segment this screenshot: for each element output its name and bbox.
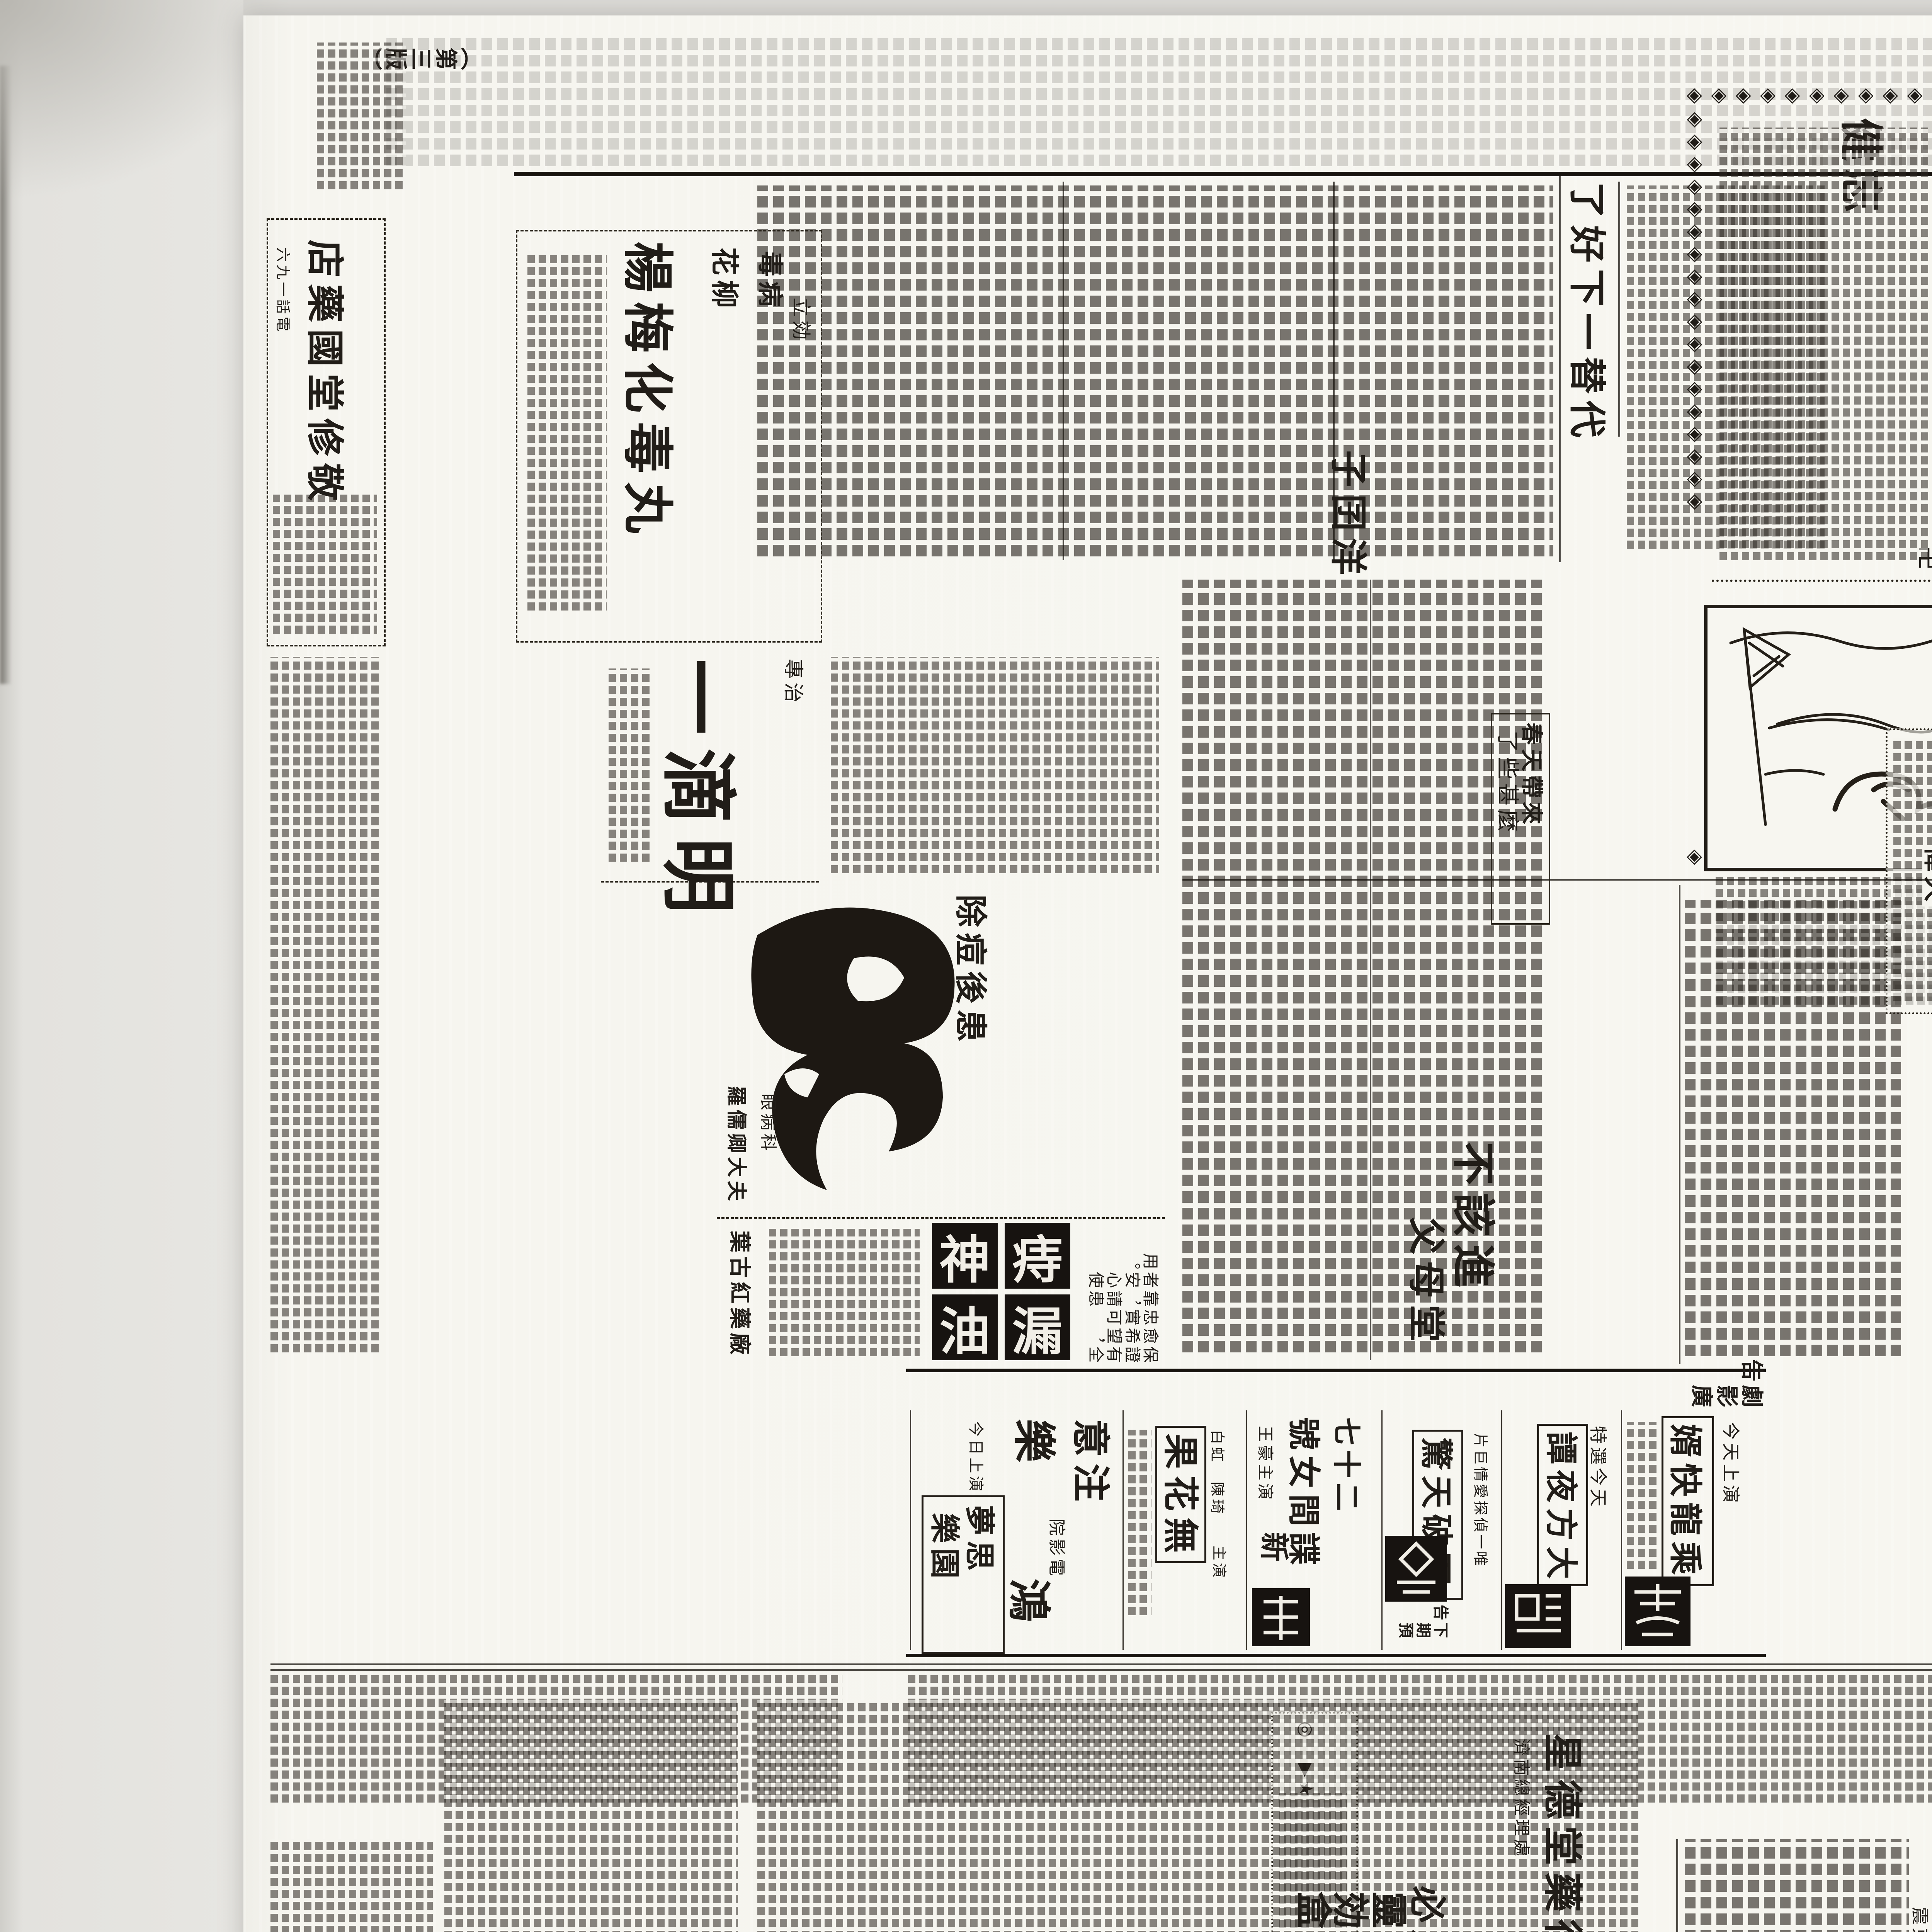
headline-daitihaole: 了好下一替代 bbox=[1568, 182, 1605, 444]
pharmacy-microtext bbox=[273, 495, 377, 634]
yidiming-title: 一滴明 bbox=[659, 659, 735, 927]
page-divider-rule bbox=[270, 1669, 1932, 1671]
zhilou-microtext bbox=[769, 1229, 920, 1356]
venue-char-hong: 鴻 bbox=[1007, 1578, 1050, 1629]
cinema-microtext bbox=[1627, 1422, 1658, 1569]
venue-label: 院影電 bbox=[1048, 1519, 1065, 1579]
dotted-divider bbox=[1712, 580, 1932, 582]
cinema-logo bbox=[1505, 1584, 1571, 1648]
film-title-right: 夢思 bbox=[964, 1505, 994, 1576]
zhilou-char-you: 油 bbox=[932, 1294, 998, 1360]
article-microtext bbox=[1685, 1839, 1909, 1932]
film-title: 婿快龍乘 bbox=[1668, 1424, 1702, 1581]
column-rule bbox=[1063, 182, 1064, 560]
pill-col4: 盒一 bbox=[1294, 1891, 1332, 1932]
cinema-microtext bbox=[1128, 1430, 1151, 1615]
headline-rule bbox=[1618, 182, 1620, 437]
cinema-logo bbox=[1625, 1577, 1690, 1646]
zhilou-copy: 保證有全愈希望，忠實可靠，請患者安心使用。 bbox=[1082, 1223, 1159, 1362]
article-microtext bbox=[444, 1700, 738, 1932]
diamond-chain-top: ◈◈◈◈◈◈◈◈◈◈◈◈ bbox=[1687, 83, 1932, 106]
newspaper-scan: { "masthead": { "title_display": "報日民平",… bbox=[0, 0, 1932, 1932]
small-ads-microtext bbox=[317, 43, 406, 189]
kicker-spring-right: 春天帶來 bbox=[1520, 723, 1543, 828]
film-title-left: 樂園 bbox=[929, 1513, 959, 1584]
store-note: 濟南總經理處 bbox=[1513, 1739, 1530, 1859]
cinema-section-label: 劇影廣告 bbox=[1673, 1375, 1764, 1406]
yangmei-title: 楊梅化毒丸 bbox=[621, 241, 672, 543]
diamond-chain-left: ◈◈◈◈◈◈◈◈◈◈◈◈◈◈◈◈◈◈ bbox=[1685, 112, 1706, 517]
page-divider-rule bbox=[270, 1663, 1932, 1665]
cinema-logo bbox=[1252, 1588, 1310, 1646]
zhilou-maker: 葉古紅藥廠 bbox=[728, 1231, 750, 1358]
headline-bugaijin: 不該進 bbox=[1451, 1142, 1494, 1295]
row-rule bbox=[1182, 879, 1932, 881]
doctor-name: 羅儒卿大夫 bbox=[726, 1086, 746, 1204]
cinema-note: 今日上演 bbox=[968, 1421, 983, 1494]
film-kicker: 唯一偵探愛情巨片 bbox=[1464, 1426, 1488, 1565]
yangmei-tag-huagill: 花柳 bbox=[710, 247, 738, 313]
article-microtext bbox=[1685, 900, 1901, 1356]
zhilou-char-zhi: 痔 bbox=[1005, 1223, 1070, 1289]
store-name: 星德堂藥行 bbox=[1542, 1733, 1581, 1932]
doctor-caption: 除痘後患 bbox=[954, 895, 986, 1048]
story-fragment: 偉大 bbox=[1922, 846, 1932, 906]
film-title: 譚夜方大 bbox=[1544, 1432, 1577, 1585]
film-title-part2: 七十二 bbox=[1332, 1417, 1360, 1516]
yangmei-tag-ligong: 立効 bbox=[791, 298, 811, 343]
cinema-band-top-rule bbox=[906, 1369, 1766, 1372]
yidiming-copy bbox=[609, 668, 651, 862]
scan-left-margin bbox=[0, 0, 243, 1932]
cinema-note: 特選今天 bbox=[1589, 1426, 1607, 1510]
column-rule bbox=[1676, 1839, 1678, 1932]
pill-col1: 必用 bbox=[1408, 1886, 1446, 1932]
zhilou-char-shen: 神 bbox=[932, 1223, 998, 1289]
yangmei-copy bbox=[527, 251, 607, 611]
film-title: 號女間諜 bbox=[1287, 1417, 1319, 1570]
headline-yangzi: 子囝洋 bbox=[1329, 450, 1366, 582]
article-microtext bbox=[831, 657, 1159, 873]
pharmacy-name: 店藥國堂修敬 bbox=[305, 240, 343, 508]
article-microtext bbox=[757, 1700, 1638, 1932]
cinema-band-bottom-rule bbox=[906, 1654, 1766, 1657]
headline-fumutang: 父母堂 bbox=[1407, 1217, 1444, 1349]
cinema-note: 王豪主演 bbox=[1257, 1426, 1273, 1502]
doctor-dept: 眼病科 bbox=[759, 1094, 776, 1154]
cinema-note: 今天上演 bbox=[1721, 1422, 1739, 1506]
attention-chars: 意注 bbox=[1071, 1419, 1109, 1508]
venue-char-le: 樂 bbox=[1012, 1419, 1055, 1470]
small-ads-microtext bbox=[270, 657, 383, 1352]
cinema-logo bbox=[1385, 1536, 1447, 1602]
film-title: 果花無 bbox=[1162, 1434, 1198, 1560]
pill-col3: 効必 bbox=[1331, 1891, 1368, 1932]
column-rule bbox=[1370, 580, 1371, 1360]
next-programme-label: 下期預告 bbox=[1391, 1615, 1449, 1638]
pharmacy-phone: 六九一話電 bbox=[275, 247, 290, 334]
kicker-spring-left: 了些甚麼 bbox=[1496, 730, 1519, 836]
pill-col2: 靈必 bbox=[1370, 1891, 1407, 1932]
byline-zhendong: 震東 bbox=[1911, 1907, 1929, 1932]
feature-microtext bbox=[1719, 128, 1928, 560]
yangmei-tag-dubing: 毒病 bbox=[757, 251, 782, 311]
article-microtext bbox=[757, 185, 1553, 556]
zhilou-char-lou: 漏 bbox=[1005, 1294, 1070, 1360]
film-cast: 白虹 陳琦 bbox=[1209, 1430, 1224, 1516]
yidiming-tag: 專治 bbox=[782, 659, 803, 706]
cinema-note: 主演 bbox=[1211, 1546, 1226, 1580]
column-rule bbox=[1559, 176, 1561, 562]
cinema-extra: 新 bbox=[1259, 1532, 1288, 1567]
article-microtext bbox=[270, 1839, 433, 1932]
column-rule bbox=[1679, 885, 1680, 1364]
